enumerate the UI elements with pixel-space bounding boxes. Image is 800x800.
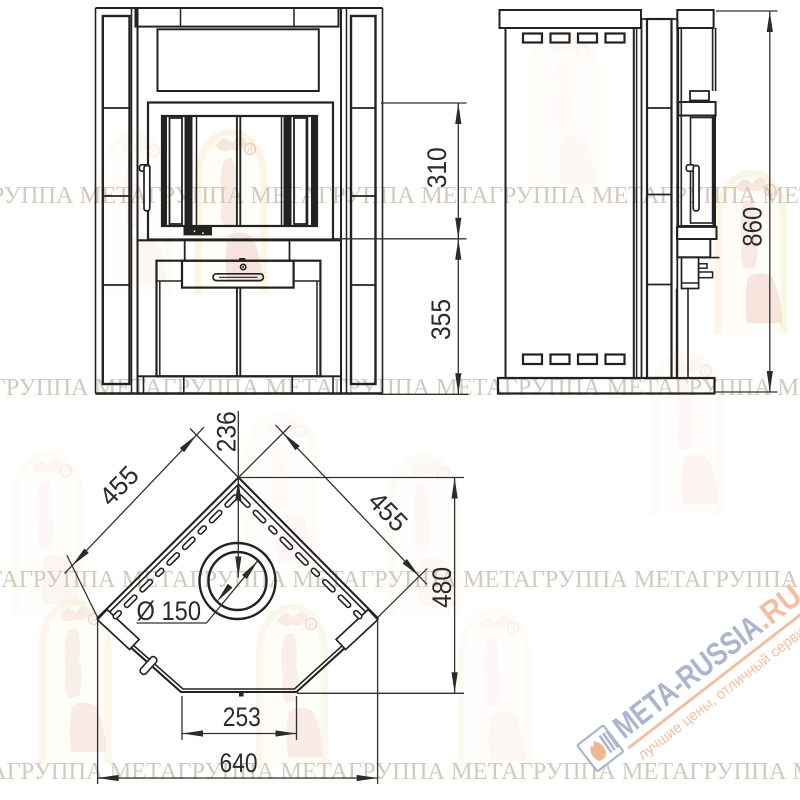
svg-text:355: 355	[426, 299, 456, 340]
svg-text:455: 455	[93, 460, 144, 512]
svg-text:236: 236	[212, 411, 242, 452]
svg-text:310: 310	[422, 147, 452, 188]
svg-text:МЕТАГРУППА МЕТАГРУППА МЕТАГРУП: МЕТАГРУППА МЕТАГРУППА МЕТАГРУППА МЕТАГРУ…	[0, 566, 800, 593]
svg-text:253: 253	[223, 702, 261, 732]
svg-text:640: 640	[220, 748, 258, 778]
svg-text:МЕТАГРУППА МЕТАГРУППА МЕТАГРУП: МЕТАГРУППА МЕТАГРУППА МЕТАГРУППА МЕТАГРУ…	[0, 758, 800, 785]
svg-text:Ø 150: Ø 150	[137, 596, 202, 626]
svg-text:860: 860	[737, 207, 767, 247]
svg-text:480: 480	[427, 567, 457, 608]
